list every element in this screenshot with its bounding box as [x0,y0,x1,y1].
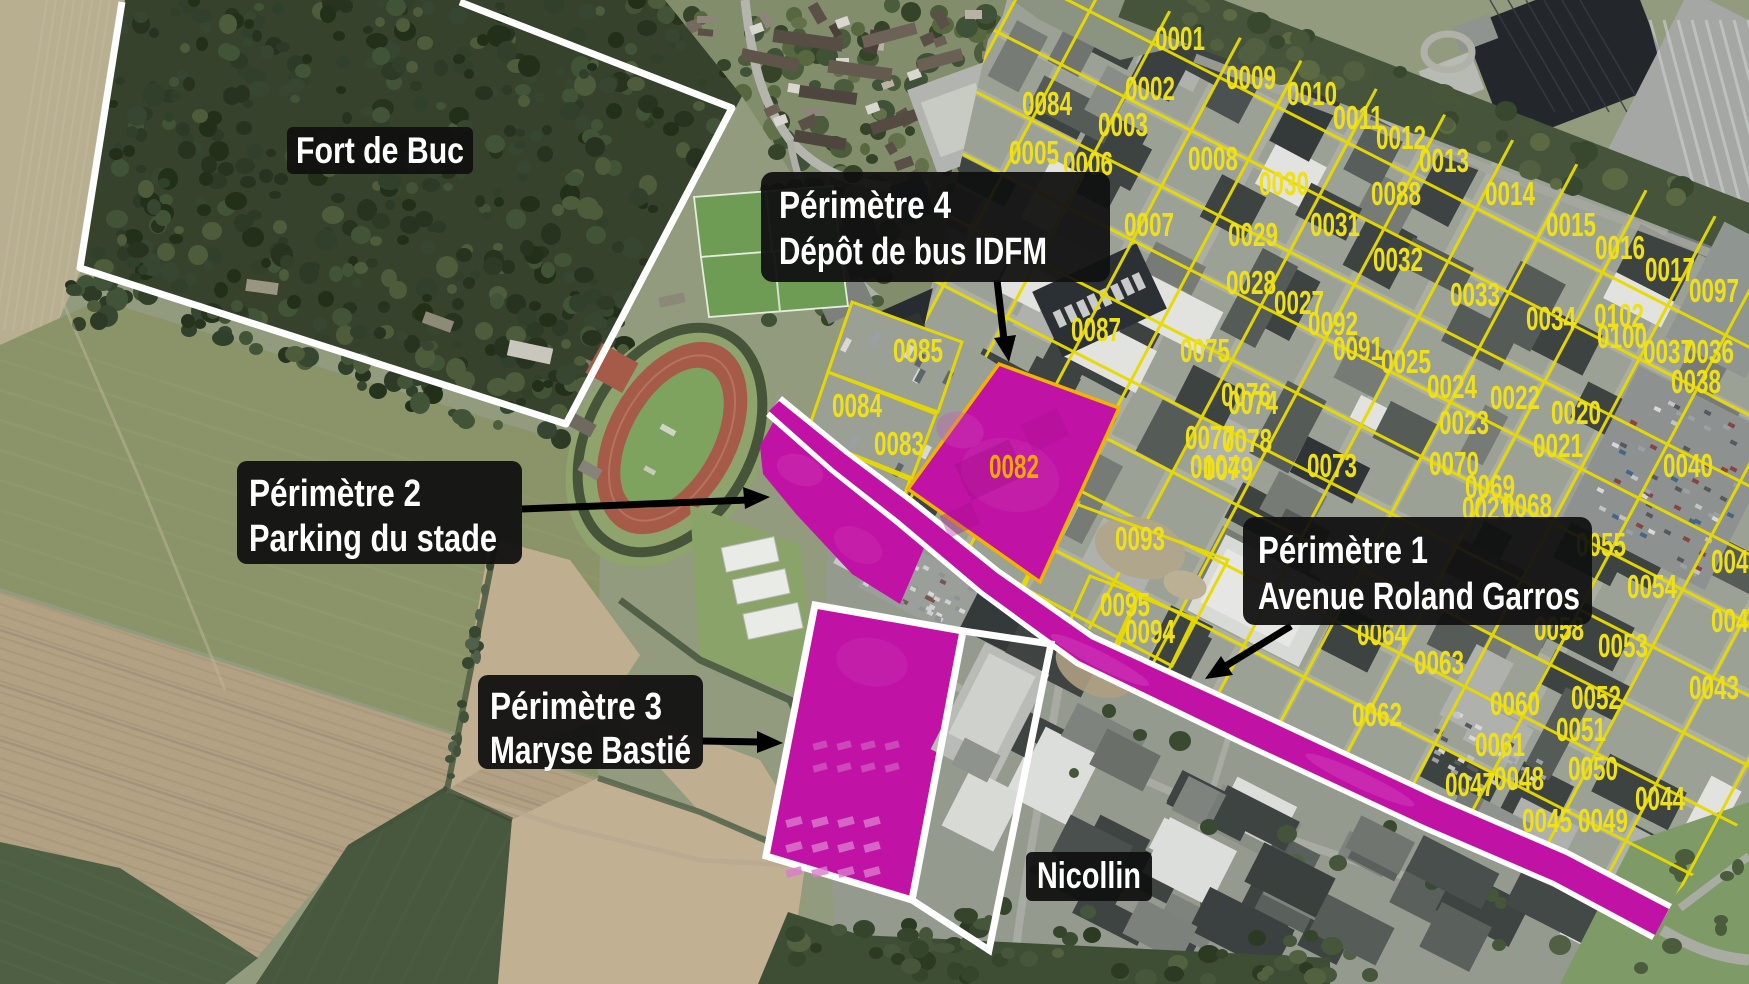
svg-text:0062: 0062 [1352,696,1402,733]
svg-text:0008: 0008 [1188,140,1238,177]
svg-text:0043: 0043 [1689,669,1739,706]
svg-text:Périmètre 4: Périmètre 4 [779,185,951,227]
svg-text:0007: 0007 [1124,206,1174,243]
svg-text:0021: 0021 [1533,427,1583,464]
svg-text:0091: 0091 [1333,330,1383,367]
svg-text:0016: 0016 [1595,229,1645,266]
svg-text:0029: 0029 [1228,216,1278,253]
svg-text:0023: 0023 [1439,404,1489,441]
svg-text:Périmètre 3: Périmètre 3 [490,686,662,728]
svg-text:0025: 0025 [1381,343,1431,380]
svg-text:0054: 0054 [1627,568,1677,605]
svg-text:0100: 0100 [1597,318,1647,355]
svg-text:0002: 0002 [1125,70,1175,107]
svg-text:0050: 0050 [1568,750,1618,787]
svg-text:0097: 0097 [1689,272,1739,309]
svg-text:0047: 0047 [1445,766,1495,803]
svg-text:0030: 0030 [1259,165,1309,202]
svg-text:0082: 0082 [989,448,1039,485]
svg-text:0049: 0049 [1578,802,1628,839]
svg-text:0084: 0084 [832,387,882,424]
svg-text:Parking du stade: Parking du stade [249,518,497,560]
svg-text:0014: 0014 [1485,175,1535,212]
svg-text:0104: 0104 [1190,448,1240,485]
svg-text:0076: 0076 [1221,376,1271,413]
svg-text:Maryse Bastié: Maryse Bastié [490,730,691,772]
svg-text:0015: 0015 [1546,206,1596,243]
svg-text:0093: 0093 [1115,520,1165,557]
svg-text:0085: 0085 [893,332,943,369]
svg-text:Périmètre 2: Périmètre 2 [249,473,421,515]
svg-text:Fort de Buc: Fort de Buc [296,130,464,171]
svg-text:0073: 0073 [1307,447,1357,484]
svg-text:0031: 0031 [1310,206,1360,243]
svg-text:0084: 0084 [1022,85,1072,122]
svg-text:0033: 0033 [1450,276,1500,313]
svg-text:0044: 0044 [1635,780,1685,817]
svg-text:0088: 0088 [1371,175,1421,212]
svg-text:0075: 0075 [1180,332,1230,369]
svg-text:0083: 0083 [874,425,924,462]
svg-text:0001: 0001 [1155,20,1205,57]
svg-text:Nicollin: Nicollin [1037,855,1141,896]
svg-text:0017: 0017 [1645,251,1695,288]
svg-text:0003: 0003 [1098,106,1148,143]
svg-text:0028: 0028 [1226,264,1276,301]
svg-text:0042: 0042 [1711,602,1749,639]
svg-text:0045: 0045 [1522,802,1572,839]
svg-text:Avenue Roland Garros: Avenue Roland Garros [1258,576,1580,618]
svg-text:0022: 0022 [1490,379,1540,416]
svg-text:0038: 0038 [1671,363,1721,400]
svg-text:0005: 0005 [1009,134,1059,171]
svg-text:0061: 0061 [1475,726,1525,763]
svg-text:0032: 0032 [1373,241,1423,278]
svg-text:Périmètre 1: Périmètre 1 [1258,530,1428,572]
svg-text:0040: 0040 [1663,447,1713,484]
svg-text:0053: 0053 [1598,627,1648,664]
svg-text:0013: 0013 [1419,142,1469,179]
svg-text:Dépôt de bus IDFM: Dépôt de bus IDFM [779,231,1047,273]
svg-text:0046: 0046 [1711,543,1749,580]
svg-text:0060: 0060 [1490,685,1540,722]
svg-text:0051: 0051 [1556,711,1606,748]
svg-text:0048: 0048 [1494,760,1544,797]
svg-text:0094: 0094 [1125,613,1175,650]
svg-text:0010: 0010 [1287,75,1337,112]
svg-text:0024: 0024 [1427,368,1477,405]
svg-text:0087: 0087 [1071,311,1121,348]
svg-text:0020: 0020 [1551,394,1601,431]
svg-text:0034: 0034 [1526,300,1576,337]
svg-text:0063: 0063 [1414,644,1464,681]
svg-text:0009: 0009 [1226,59,1276,96]
